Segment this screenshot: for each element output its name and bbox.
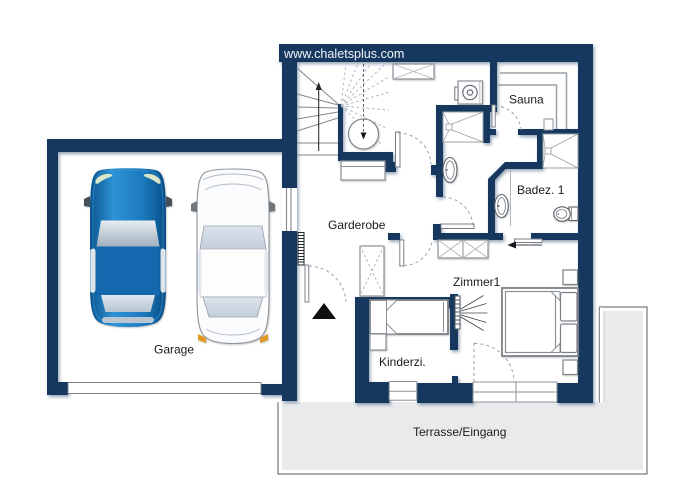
svg-text:Zimmer1: Zimmer1 [453, 275, 501, 289]
svg-text:Badez. 1: Badez. 1 [517, 183, 565, 197]
svg-text:Garage: Garage [154, 343, 194, 357]
svg-text:Terrasse/Eingang: Terrasse/Eingang [413, 425, 506, 439]
svg-text:Kinderzi.: Kinderzi. [379, 355, 426, 369]
svg-text:www.chaletsplus.com: www.chaletsplus.com [283, 47, 404, 61]
svg-text:Sauna: Sauna [509, 93, 544, 107]
svg-text:Garderobe: Garderobe [328, 218, 386, 232]
